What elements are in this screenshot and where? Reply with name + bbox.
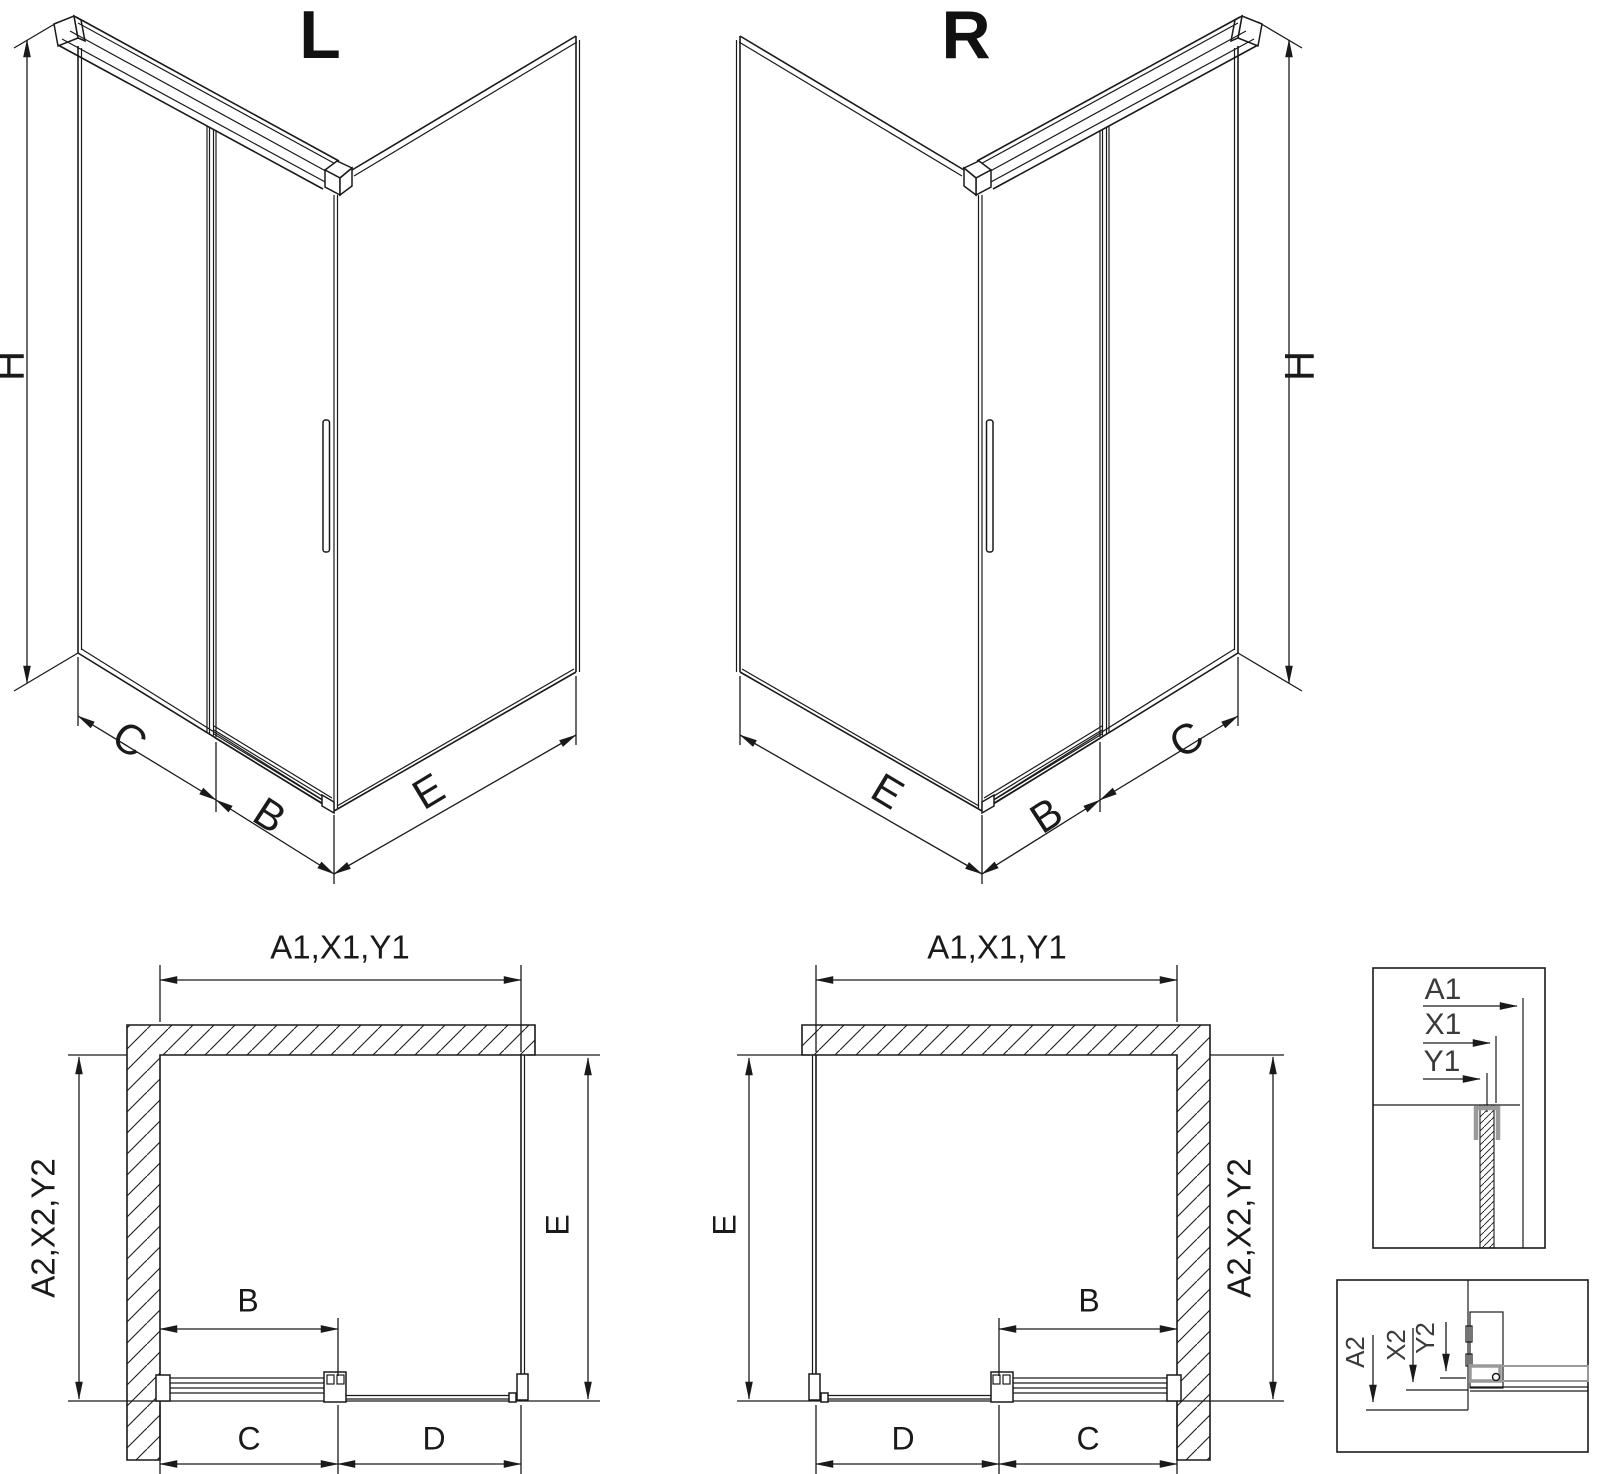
detail-top-section: A1 X1 Y1 [1373,968,1545,1248]
iso-left-side-panel [334,36,580,811]
plan-left-structure [68,965,600,1474]
plan-right-dim-left-label: E [706,1214,742,1235]
iso-right-dim-base-lines [740,657,1238,884]
detail-bottom-roller [1493,1374,1500,1381]
iso-right-door-handle [987,420,994,552]
plan-left-dim-left-lines [68,1055,127,1401]
iso-right-top-rail [975,16,1262,189]
detail-top-label-x1: X1 [1425,1008,1462,1041]
plan-right-door-assembly [821,1372,1181,1402]
plan-right-dim-bottom-outer-label: D [891,1420,914,1456]
plan-left-side-panel [517,1055,528,1401]
plan-left-dim-bottom-lines [160,1405,521,1474]
detail-bottom-label-y2: Y2 [1410,1322,1440,1354]
iso-right-door-panel [982,46,1238,811]
plan-left-door-assembly [156,1372,516,1402]
plan-left-dim-top-label: A1,X1,Y1 [270,929,409,966]
iso-left-top-rail [54,16,341,189]
detail-bottom-section: A2 X2 Y2 [1337,1280,1588,1452]
technical-drawing-page: L H C B E R H C B E [0,0,1600,1474]
plan-right-dim-door-lines [999,1318,1177,1376]
detail-bottom-rail [1470,1366,1588,1391]
plan-left-dim-bottom-inner-label: C [237,1420,260,1456]
iso-left-dim-height-label: H [0,351,33,381]
shower-enclosure-diagram: L H C B E R H C B E [0,0,1600,1474]
iso-right-side-panel [737,36,983,811]
iso-right-title: R [941,0,990,73]
iso-left-title: L [299,0,341,73]
plan-right-dim-bottom-inner-label: C [1076,1420,1099,1456]
detail-bottom-label-x2: X2 [1381,1329,1411,1361]
plan-left-dim-door-label: B [237,1282,258,1318]
plan-right-dim-door-label: B [1078,1282,1099,1318]
iso-left-dim-base-lines [78,657,576,884]
plan-right-dim-bottom-lines [816,1405,1177,1474]
detail-top-label-y1: Y1 [1424,1045,1461,1078]
iso-right-dim-height-label: H [1276,351,1323,381]
plan-left-dim-left-label: A2,X2,Y2 [25,1158,62,1297]
plan-right-side-panel [809,1055,820,1401]
iso-right-structure [737,16,1303,884]
detail-top-glass-section [1480,1105,1494,1248]
iso-left-door-handle [323,420,330,552]
plan-left-dim-side-label: E [539,1214,575,1235]
plan-left-dim-bottom-outer-label: D [422,1420,445,1456]
detail-bottom-label-a2: A2 [1340,1336,1370,1368]
detail-top-label-a1: A1 [1425,973,1462,1006]
iso-left-structure [14,16,580,884]
iso-right-dim-door-label: B [1022,788,1071,843]
iso-left-dim-door-label: B [245,788,294,843]
plan-right-dim-top-label: A1,X1,Y1 [927,929,1066,966]
plan-right-dim-side-lines [737,1055,810,1399]
plan-left-dim-door-lines [160,1318,338,1376]
iso-left-door-panel [78,46,334,811]
plan-right-dim-right-label: A2,X2,Y2 [1221,1158,1258,1297]
